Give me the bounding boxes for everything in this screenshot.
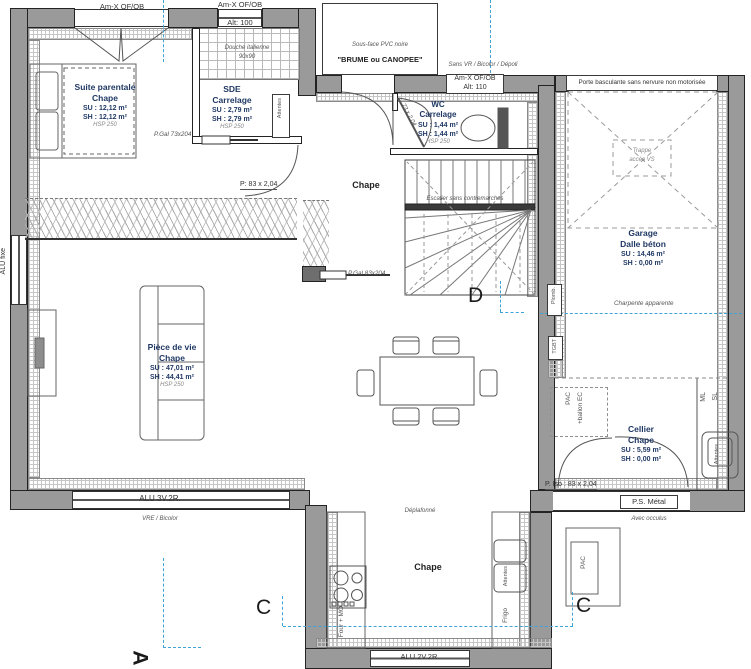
plomb-label: Plomb.	[551, 287, 557, 304]
room-label-suite: Suite parentale Chape SU : 12,12 m² SH :…	[55, 82, 155, 130]
door-label-sde: P.Gal 73x204	[154, 131, 191, 138]
trap-label: accès VS	[612, 157, 672, 163]
frigo-label: Frigo	[502, 608, 509, 623]
axis-line	[163, 647, 201, 648]
door-label-suite: P: 83 x 2,04	[240, 181, 277, 190]
garage-door-label: Porte basculante sans nervure non motori…	[566, 79, 718, 86]
window-label: Am-X OF/OB	[446, 75, 504, 82]
window-label-alu-fixe: ALU fixe	[0, 248, 7, 274]
four-mo-label: Four + MO	[338, 606, 345, 637]
window-label: Alt: 100	[208, 18, 272, 27]
insulation	[28, 28, 192, 40]
window-alu-fixe	[11, 235, 27, 305]
window-label-alu-2v2r: ALU 2V.2R.	[378, 652, 462, 661]
pac-ballon-label: PAC	[565, 392, 572, 405]
window-note-vre: VRE / Bicolor	[110, 516, 210, 522]
insulation	[327, 512, 338, 648]
room-label-vie: Pièce de vie Chape SU : 47,01 m² SH : 44…	[122, 342, 222, 390]
axis-line	[540, 313, 742, 314]
window-label: Am-X OF/OB	[82, 2, 162, 11]
room-label-cellier: Cellier Chape SU : 5,59 m² SH : 0,00 m²	[601, 424, 681, 464]
section-d-line	[500, 312, 524, 313]
section-marker-c: C	[256, 596, 271, 620]
room-label-garage: Garage Dalle béton SU : 14,46 m² SH : 0,…	[593, 228, 693, 268]
claustra-band	[25, 198, 297, 240]
sl-label: SL	[712, 392, 719, 401]
hall-floor-label: Chape	[336, 180, 396, 190]
wall	[316, 75, 342, 93]
tgbt-box: TGBT	[548, 336, 563, 360]
axis-line	[163, 0, 164, 62]
duct-pier	[303, 200, 329, 266]
tgbt-label: TGBT	[552, 339, 558, 354]
ps-metal-label: P.S. Métal	[620, 497, 678, 506]
tgbt-hatch	[548, 360, 563, 378]
wall	[728, 75, 745, 512]
window-note: Sans VR / Bicolor / Dépoli	[443, 62, 523, 68]
section-c-line-left	[282, 596, 283, 626]
stairs-label: Escalier sans contremarches	[398, 196, 532, 202]
section-marker-a: A	[128, 650, 152, 665]
pac-label: PAC	[580, 556, 587, 569]
door-label-p-iso: P. Iso : 83 x 2,04	[545, 481, 597, 490]
axis-line	[283, 626, 573, 627]
section-d-line	[500, 281, 501, 312]
door-label-stairs: P.Gal 83x204	[348, 270, 385, 277]
window-label: Alt: 110	[446, 84, 504, 91]
kitchen-floor-label: Chape	[398, 562, 458, 572]
porch-canopy	[322, 3, 438, 75]
section-c-line-right	[572, 592, 573, 626]
pac-ballon-label: +ballon EC	[577, 392, 584, 424]
insulation	[519, 512, 530, 648]
attentes-box: Attentes	[272, 94, 290, 138]
shower-label: 90x90	[212, 54, 282, 60]
porch-note: Sous-face PVC noire	[330, 42, 430, 48]
plomb-box: Plomb.	[547, 284, 562, 316]
ps-metal-note: Avec occulus	[616, 516, 682, 522]
window-french-door-opening	[75, 9, 168, 27]
section-marker-d: D	[468, 284, 483, 308]
outdoor-pac-unit	[566, 528, 620, 606]
room-label-sde: SDE Carrelage SU : 2,79 m² SH : 2,79 m² …	[192, 84, 272, 132]
partition	[390, 148, 538, 155]
axis-line	[163, 558, 164, 648]
charpente-label: Charpente apparente	[614, 300, 674, 307]
window-label: Am-X OF/OB	[208, 0, 272, 9]
pac-ballon-box: PAC +ballon EC	[550, 387, 608, 437]
section-marker-c2: C	[576, 594, 591, 618]
trap-label: Trappe	[612, 148, 672, 154]
wall	[394, 75, 448, 93]
duct-block	[302, 266, 326, 282]
porch-name: "BRUME ou CANOPEE"	[324, 55, 436, 64]
insulation	[316, 638, 552, 648]
stairs	[405, 160, 535, 295]
floor-plan: Am-X OF/OB Am-X OF/OB Alt: 100 Sous-face…	[0, 0, 751, 669]
partition	[392, 93, 398, 111]
insulation	[28, 40, 40, 478]
attentes-label: Attentes	[503, 566, 509, 586]
dining-table	[357, 337, 497, 425]
kitchen-counter	[327, 512, 530, 648]
ml-label: ML	[700, 392, 707, 402]
attentes-label: Attentes	[714, 444, 720, 464]
window-label-alu-3v2r: ALU 3V.2R.	[110, 494, 210, 503]
shower-label: Douche italienne	[212, 45, 282, 51]
insulation	[717, 92, 728, 490]
wall	[298, 8, 316, 96]
insulation	[28, 478, 305, 490]
attentes-label: Attentes	[277, 98, 283, 118]
deplafonne-label: Déplafonné	[385, 508, 455, 514]
